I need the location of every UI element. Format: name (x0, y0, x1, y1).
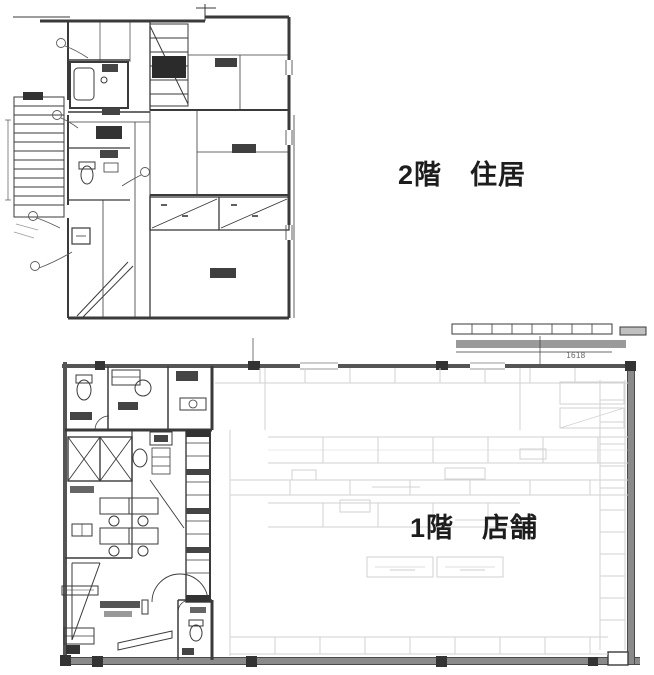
store-shelf-rows-icon (215, 368, 628, 656)
floor1-label: 1階 店舗 (410, 513, 538, 543)
office-desks (72, 498, 158, 556)
small-wc (178, 600, 206, 655)
restrooms (70, 370, 206, 430)
toilet-icon (79, 162, 95, 184)
floor2-room-tags (210, 58, 256, 278)
closet-diagonal-icon (150, 197, 289, 230)
floor2-kitchen-wc-fixtures (72, 108, 122, 244)
staircase-icon (186, 430, 210, 602)
floor2-reference-markers (29, 39, 150, 271)
exterior-staircase-icon (5, 92, 64, 238)
floor2-label: 2階 住居 (398, 159, 526, 190)
floor2-bathroom (70, 62, 128, 108)
floor1-plan: 1618 (60, 324, 646, 667)
floor2-plan (5, 4, 294, 318)
toilet-icon (189, 620, 203, 641)
canopy-dimension-label: 1618 (566, 351, 585, 360)
floor-plan-page: 2階 住居 1618 (0, 0, 654, 675)
entrance-canopy (253, 324, 646, 366)
floor-plan-drawing: 2階 住居 1618 (0, 0, 654, 675)
floor2-stair-void-icon (150, 24, 188, 106)
floor2-outer-walls (13, 4, 294, 318)
toilet-icon (76, 375, 92, 400)
